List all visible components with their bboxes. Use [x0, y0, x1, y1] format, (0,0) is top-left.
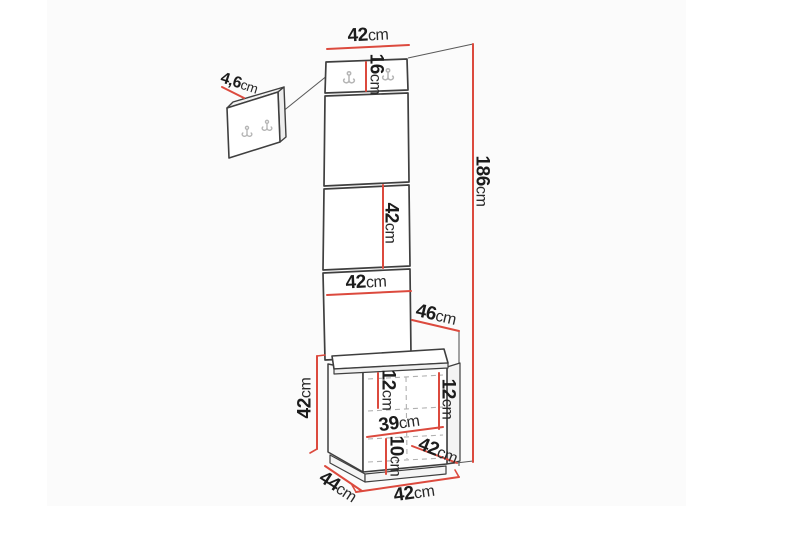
dim-tick: [317, 355, 325, 356]
dim-label-total-height: 186cm: [473, 155, 492, 206]
furniture-dimension-diagram: 42cm 16cm 4,6cm 42cm 42cm 46cm 186cm 42c…: [0, 0, 800, 533]
dim-label-middle-panel-height: 42cm: [382, 203, 401, 244]
dim-label-plinth-height: 10cm: [387, 436, 406, 477]
bench-left-side-face: [328, 364, 363, 472]
dim-label-bench-height: 42cm: [296, 378, 315, 419]
dim-label-drawer-height-right: 12cm: [439, 379, 458, 420]
dim-label-hook-panel-height: 16cm: [367, 54, 386, 95]
dim-label-panel-width-lower: 42cm: [345, 271, 387, 292]
dim-label-panel-width-top: 42cm: [347, 24, 389, 45]
dim-label-drawer-height-left: 12cm: [379, 370, 398, 411]
panel-section-2: [324, 93, 409, 186]
